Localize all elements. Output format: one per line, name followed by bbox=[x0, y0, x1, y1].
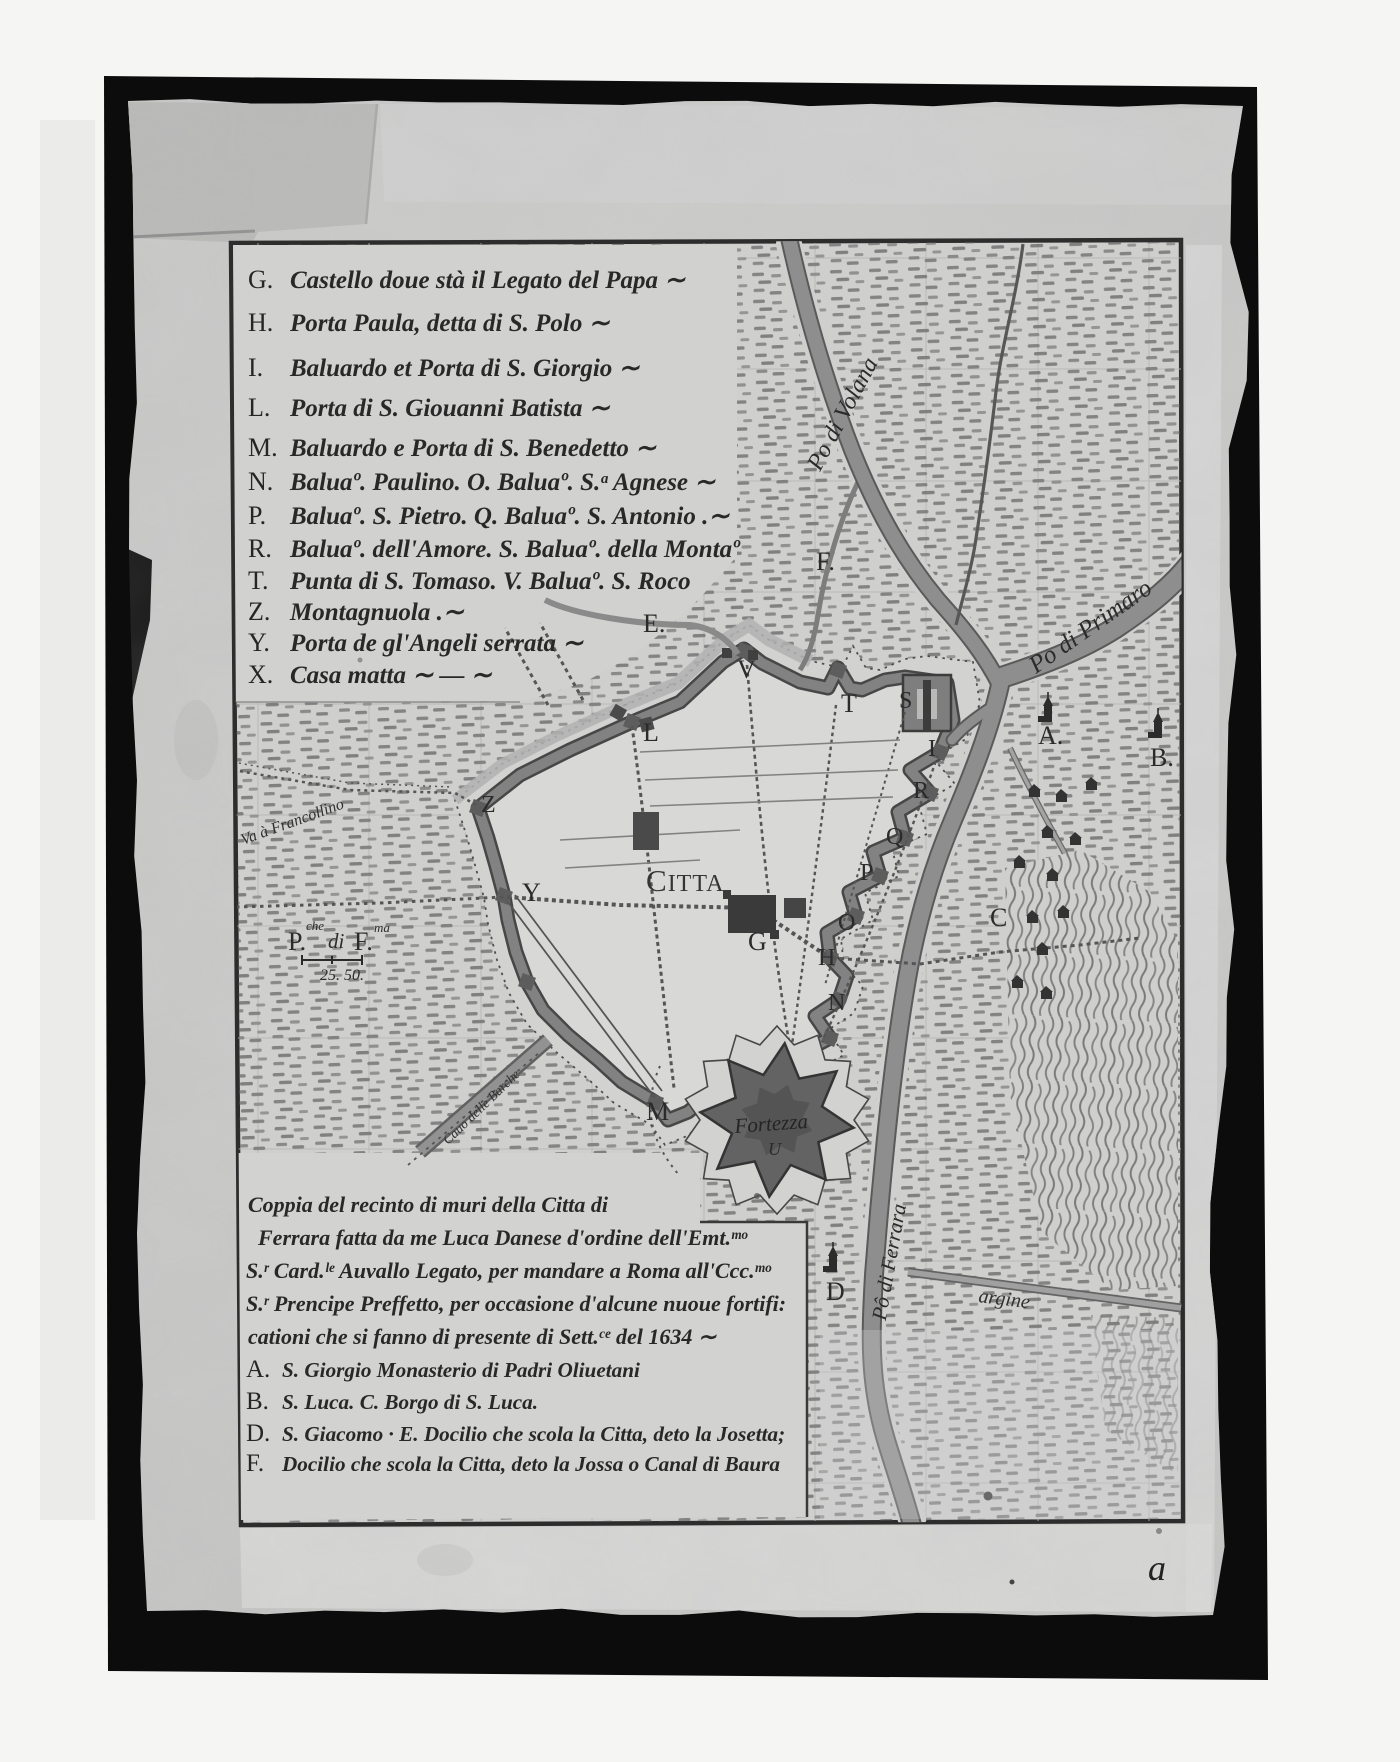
svg-text:R.: R. bbox=[248, 534, 272, 563]
svg-text:Q: Q bbox=[886, 824, 903, 850]
svg-text:L.: L. bbox=[248, 393, 270, 422]
svg-text:G.: G. bbox=[248, 265, 273, 294]
svg-text:I.: I. bbox=[248, 353, 263, 382]
svg-text:Baluaº. Paulino. O. Baluaº. S.: Baluaº. Paulino. O. Baluaº. S.ᵃ Agnese ∼ bbox=[289, 469, 716, 496]
svg-text:E.: E. bbox=[643, 609, 665, 638]
svg-text:I: I bbox=[928, 736, 936, 762]
svg-text:L: L bbox=[643, 718, 659, 747]
svg-text:U: U bbox=[768, 1139, 782, 1159]
svg-text:Ferrara fatta da me Luca Danes: Ferrara fatta da me Luca Danese d'ordine… bbox=[257, 1225, 748, 1250]
svg-text:R: R bbox=[913, 778, 929, 804]
svg-text:M: M bbox=[646, 1097, 669, 1126]
svg-text:Baluardo et Porta di S. Giorgi: Baluardo et Porta di S. Giorgio ∼ bbox=[289, 355, 641, 382]
svg-text:Punta di S. Tomaso. V. Baluaº.: Punta di S. Tomaso. V. Baluaº. S. Roco bbox=[289, 568, 691, 595]
svg-text:S.ʳ Card.ˡᵉ Auvallo Legato, pe: S.ʳ Card.ˡᵉ Auvallo Legato, per mandare … bbox=[246, 1258, 772, 1283]
svg-text:Coppia del recinto di muri del: Coppia del recinto di muri della Citta d… bbox=[248, 1192, 609, 1217]
svg-text:H.: H. bbox=[248, 308, 273, 337]
svg-text:F.: F. bbox=[354, 927, 373, 956]
svg-text:P.: P. bbox=[288, 927, 306, 956]
svg-text:Y: Y bbox=[522, 878, 541, 907]
svg-text:S. Luca. C. Borgo di S. L: S. Luca. C. Borgo di S. Luca. bbox=[282, 1390, 538, 1414]
svg-text:C: C bbox=[990, 903, 1007, 932]
svg-text:P: P bbox=[860, 860, 873, 886]
svg-text:T.: T. bbox=[248, 566, 268, 595]
svg-text:A.: A. bbox=[246, 1356, 270, 1383]
svg-text:V: V bbox=[737, 655, 756, 684]
svg-text:di: di bbox=[328, 929, 345, 953]
svg-text:N.: N. bbox=[248, 467, 273, 496]
svg-text:D.: D. bbox=[246, 1420, 270, 1447]
svg-text:Y.: Y. bbox=[248, 628, 270, 657]
svg-text:cationi che si fanno di presen: cationi che si fanno di presente di Sett… bbox=[248, 1324, 717, 1349]
svg-text:Baluaº. dell'Amore. S. Baluaº.: Baluaº. dell'Amore. S. Baluaº. della Mon… bbox=[289, 536, 741, 563]
svg-text:Porta di S. Giouanni Batista ∼: Porta di S. Giouanni Batista ∼ bbox=[289, 395, 611, 422]
svg-text:X.: X. bbox=[248, 660, 273, 689]
svg-text:D: D bbox=[826, 1277, 845, 1306]
svg-text:G: G bbox=[748, 927, 767, 956]
svg-text:N: N bbox=[828, 990, 845, 1016]
svg-text:Z.: Z. bbox=[248, 597, 270, 626]
svg-text:S. Giorgio Monasterio di Padri: S. Giorgio Monasterio di Padri Oliuetani bbox=[282, 1358, 640, 1382]
svg-text:Baluardo e Porta di S. Benedet: Baluardo e Porta di S. Benedetto ∼ bbox=[289, 435, 657, 462]
svg-text:Montagnuola .∼: Montagnuola .∼ bbox=[289, 599, 465, 626]
svg-text:Castello doue stà il Legato de: Castello doue stà il Legato del Papa ∼ bbox=[290, 267, 686, 294]
svg-text:H: H bbox=[818, 945, 835, 971]
svg-text:Casa matta ∼ — ∼: Casa matta ∼ — ∼ bbox=[290, 662, 493, 689]
svg-text:F.: F. bbox=[816, 547, 835, 576]
svg-text:B.: B. bbox=[246, 1388, 269, 1415]
svg-text:A.: A. bbox=[1038, 721, 1063, 750]
svg-text:B.: B. bbox=[1150, 743, 1174, 772]
svg-text:S.ʳ Prencipe Preffetto, per oc: S.ʳ Prencipe Preffetto, per occasione d'… bbox=[246, 1291, 786, 1316]
svg-text:che: che bbox=[306, 918, 324, 933]
svg-text:Docilio che scola la Citta, de: Docilio che scola la Citta, deto la Joss… bbox=[281, 1452, 780, 1476]
svg-text:Porta Paula, detta di S. Polo: Porta Paula, detta di S. Polo ∼ bbox=[289, 310, 611, 337]
svg-text:ma: ma bbox=[374, 920, 390, 935]
svg-text:P.: P. bbox=[248, 501, 266, 530]
svg-text:S. Giacomo · E. Docilio che sc: S. Giacomo · E. Docilio che scola la Cit… bbox=[282, 1422, 785, 1446]
svg-text:25. 50.: 25. 50. bbox=[320, 967, 364, 984]
svg-text:Baluaº. S. Pietro. Q. Baluaº.: Baluaº. S. Pietro. Q. Baluaº. S. Antonio… bbox=[289, 503, 730, 530]
svg-text:M.: M. bbox=[248, 433, 278, 462]
svg-text:a: a bbox=[1148, 1548, 1166, 1588]
svg-text:Z: Z bbox=[481, 792, 496, 818]
svg-text:Porta de gl'Angeli serrata ∼: Porta de gl'Angeli serrata ∼ bbox=[289, 630, 584, 657]
svg-text:S: S bbox=[899, 688, 912, 714]
svg-text:T: T bbox=[841, 689, 857, 718]
svg-text:F.: F. bbox=[246, 1450, 264, 1477]
svg-text:O: O bbox=[838, 910, 855, 936]
